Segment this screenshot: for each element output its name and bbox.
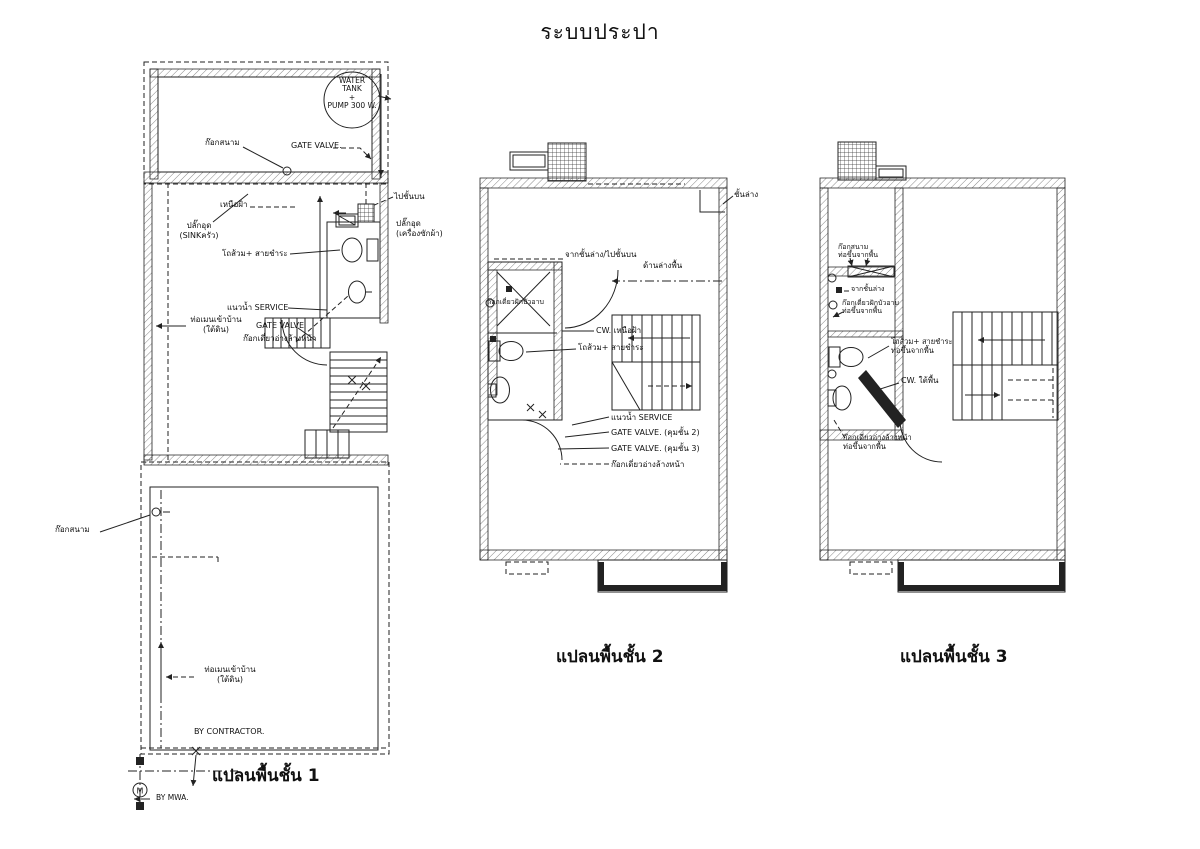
plan1-caption: แปลนพื้นชั้น 1 [212,762,320,789]
toilet-spray-label-2: โถส้วม+ สายชำระ [578,343,644,353]
lower-floor-label: ชั้นล่าง [734,190,758,200]
plan1-drawing: M [100,62,393,810]
cw-above-ceiling-label: CW. เหนือฝ้า [596,326,641,336]
by-mwa-label: BY MWA. [156,793,189,802]
service-line-label-1: แนวน้ำ SERVICE [227,303,288,313]
plan3-drawing [820,142,1065,592]
bathroom-2 [486,262,562,460]
garden-tap-top-icon [243,147,291,175]
balcony-3 [850,560,1065,592]
main-pipe-mid-label: ท่อเมนเข้าบ้าน (ใต้ดิน) [182,315,250,334]
plumbing-plan-sheet: M [0,0,1200,849]
toilet-spray-label-3: โถส้วม+ สายชำระ ท่อขึ้นจากพื้น [891,337,973,355]
plan2-caption: แปลนพื้นชั้น 2 [556,643,664,670]
floor-plan-drawing: M [0,0,1200,849]
above-ceiling-label: เหนือฝ้า [220,200,247,210]
plan3-caption: แปลนพื้นชั้น 3 [900,643,1008,670]
to-upper-floor-label: ไปชั้นบน [394,192,425,202]
toilet-icon [829,347,863,367]
sheet-title: ระบบประปา [540,16,659,49]
plug-washer-label: ปลั๊กอุด (เครื่องซักผ้า) [396,219,468,238]
stairs-3 [953,312,1058,420]
garden-tap-left-icon [100,508,170,532]
roof-vent-icon [838,142,906,180]
main-pipe-bottom-label: ท่อเมนเข้าบ้าน (ใต้ดิน) [194,665,266,684]
svg-text:M: M [137,787,144,796]
from-lower-to-upper-label: จากชั้นล่าง/ไปชั้นบน [565,250,636,260]
balcony-2 [506,560,727,592]
roof-vent-icon [510,143,586,181]
door-arc [565,270,618,328]
by-contractor-label: BY CONTRACTOR. [194,727,264,737]
from-lower-label-3: จากชั้นล่าง [851,285,884,293]
garden-tap-label-3: ก๊อกสนาม ท่อขึ้นจากพื้น [838,243,910,260]
washbasin-icon [828,386,851,410]
plan2-drawing [480,143,733,592]
basin-tap-label-3: ก๊อกเดี่ยวอ่างล้างหน้า ท่อขึ้นจากพื้น [843,433,939,451]
garden-tap-left-label: ก๊อกสนาม [55,525,90,535]
plug-sink-label: ปลั๊กอุด (SINKครัว) [168,221,230,240]
toilet-spray-label-1: โถส้วม+ สายชำระ [222,249,288,259]
under-floor-label: ด้านล่างพื้น [643,261,682,271]
gate-valve-floor3-label: GATE VALVE. (คุมชั้น 3) [611,444,700,454]
basin-tap-label-1: ก๊อกเดี่ยวอ่างล้างหน้า [243,334,316,344]
cw-under-floor-label: CW. ใต้พื้น [901,376,939,386]
washer-plug-icon [336,214,358,227]
shower-tap-label-2: ก๊อกเดี่ยวฝักบัวอาบ [487,298,553,306]
gate-valve-symbol [527,404,546,418]
basin-tap-label-2: ก๊อกเดี่ยวอ่างล้างหน้า [611,460,684,470]
toilet-icon [342,238,378,262]
door-arc [522,420,562,460]
garden-tap-top-label: ก๊อกสนาม [205,138,240,148]
water-tank-label: WATER TANK + PUMP 300 W. [324,77,380,110]
washbasin-icon [349,281,373,303]
gate-valve-mid-label: GATE VALVE [256,321,304,331]
shower-tap-label-3: ก๊อกเดี่ยวฝักบัวอาบ ท่อขึ้นจากพื้น [842,299,922,316]
gate-valve-floor2-label: GATE VALVE. (คุมชั้น 2) [611,428,700,438]
service-line-label-2: แนวน้ำ SERVICE [611,413,672,423]
bathroom-1 [327,204,380,390]
gate-valve-top-label: GATE VALVE. [291,141,342,151]
